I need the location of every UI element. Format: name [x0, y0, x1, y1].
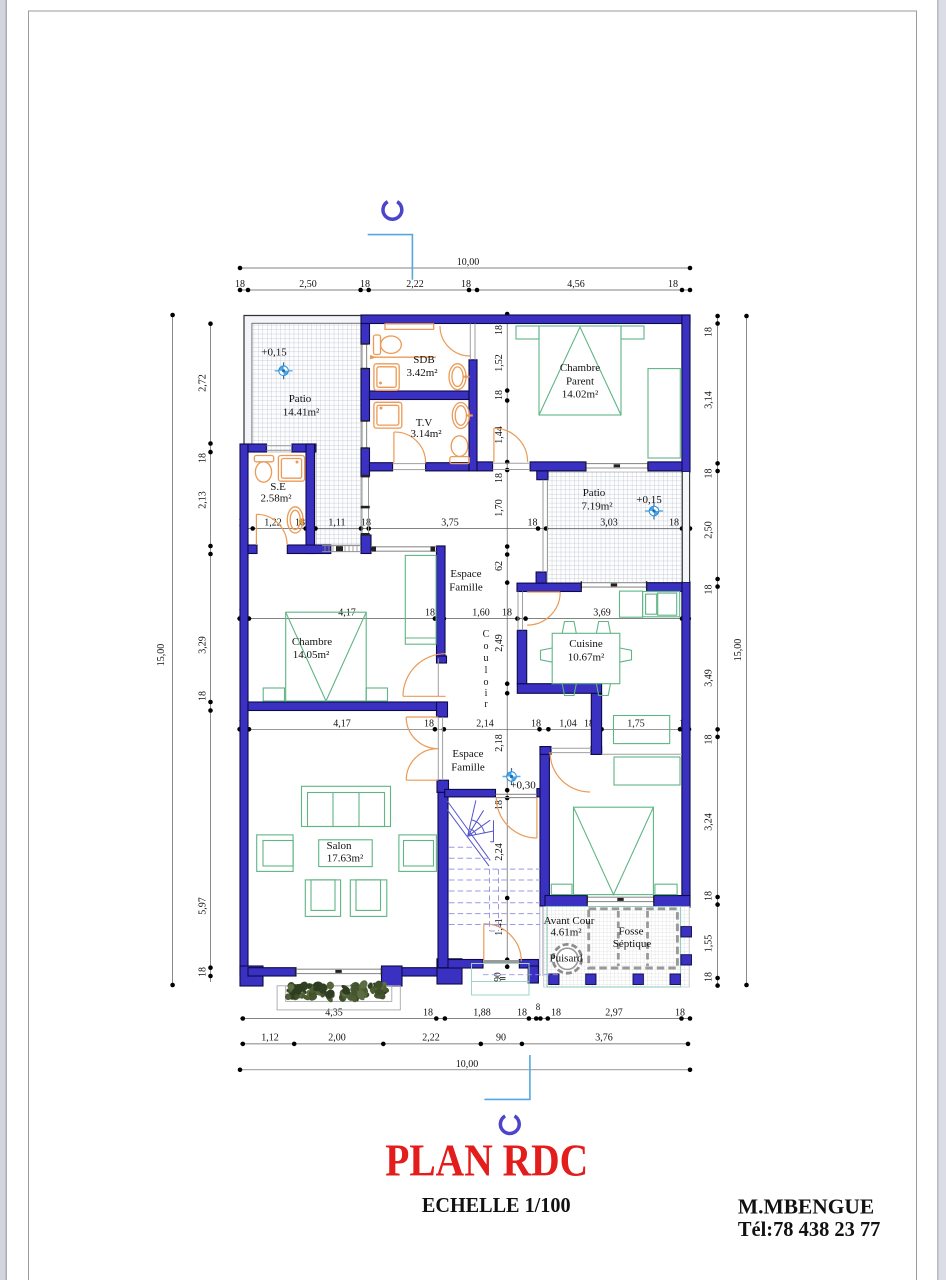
svg-text:2,18: 2,18: [494, 734, 505, 752]
svg-text:i: i: [485, 688, 488, 699]
svg-text:18: 18: [551, 1008, 561, 1019]
svg-text:4,35: 4,35: [325, 1008, 343, 1019]
svg-text:o: o: [484, 641, 489, 652]
svg-text:+0,30: +0,30: [510, 780, 536, 792]
svg-text:Tél:78 438 23 77: Tél:78 438 23 77: [738, 1217, 881, 1241]
svg-text:Salon: Salon: [326, 840, 352, 852]
svg-text:18: 18: [704, 469, 715, 479]
svg-text:18: 18: [461, 279, 471, 290]
svg-text:1,12: 1,12: [261, 1033, 279, 1044]
svg-text:18: 18: [668, 279, 678, 290]
svg-text:3,24: 3,24: [704, 813, 715, 831]
svg-text:Patio: Patio: [583, 487, 606, 499]
svg-text:+0,15: +0,15: [261, 347, 287, 359]
svg-text:18: 18: [704, 972, 715, 982]
svg-text:18: 18: [198, 967, 209, 977]
svg-text:18: 18: [502, 608, 512, 619]
svg-text:7.19m²: 7.19m²: [581, 501, 613, 513]
svg-text:17.63m²: 17.63m²: [327, 853, 364, 865]
svg-text:1,11: 1,11: [328, 518, 345, 529]
svg-text:Séptique: Séptique: [613, 938, 652, 950]
svg-text:Patio: Patio: [289, 393, 312, 405]
svg-text:2,00: 2,00: [328, 1033, 346, 1044]
svg-text:1,75: 1,75: [627, 718, 645, 729]
svg-text:10,00: 10,00: [456, 1059, 479, 1070]
svg-text:ECHELLE 1/100: ECHELLE 1/100: [422, 1193, 571, 1217]
svg-text:18: 18: [669, 518, 679, 529]
svg-text:3,69: 3,69: [593, 608, 611, 619]
svg-text:14.02m²: 14.02m²: [562, 389, 599, 401]
svg-text:18: 18: [198, 453, 209, 463]
svg-text:SDB: SDB: [413, 354, 434, 366]
svg-text:1,55: 1,55: [704, 935, 715, 953]
svg-text:2,97: 2,97: [605, 1008, 623, 1019]
svg-text:PLAN RDC: PLAN RDC: [385, 1135, 588, 1186]
svg-text:2.58m²: 2.58m²: [260, 493, 292, 505]
svg-text:18: 18: [494, 800, 505, 810]
svg-text:4.61m²: 4.61m²: [550, 927, 582, 939]
svg-text:4,17: 4,17: [338, 608, 356, 619]
svg-text:Espace: Espace: [450, 568, 481, 580]
svg-text:18: 18: [235, 279, 245, 290]
svg-text:1,70: 1,70: [494, 499, 505, 517]
svg-text:3,14: 3,14: [704, 391, 715, 409]
svg-text:1,60: 1,60: [472, 608, 490, 619]
svg-text:3.42m²: 3.42m²: [406, 367, 438, 379]
svg-text:18: 18: [517, 1008, 527, 1019]
svg-text:2,24: 2,24: [494, 843, 505, 861]
svg-text:S.E: S.E: [270, 481, 286, 493]
svg-text:18: 18: [360, 279, 370, 290]
svg-text:1,88: 1,88: [473, 1008, 491, 1019]
svg-text:18: 18: [494, 390, 505, 400]
svg-text:Chambre: Chambre: [560, 362, 600, 374]
svg-text:2,72: 2,72: [198, 374, 209, 392]
svg-text:18: 18: [528, 518, 538, 529]
svg-text:1,04: 1,04: [559, 718, 577, 729]
svg-text:2,49: 2,49: [494, 634, 505, 652]
svg-text:18: 18: [424, 718, 434, 729]
svg-text:3,03: 3,03: [600, 518, 618, 529]
svg-text:+0,15: +0,15: [636, 494, 662, 506]
svg-text:2,50: 2,50: [704, 521, 715, 539]
svg-text:Famille: Famille: [451, 762, 485, 774]
svg-text:2,14: 2,14: [476, 718, 494, 729]
svg-text:8: 8: [536, 1002, 541, 1012]
svg-text:3,29: 3,29: [198, 636, 209, 654]
svg-text:o: o: [484, 677, 489, 688]
svg-text:90: 90: [494, 972, 504, 982]
svg-text:3.14m²: 3.14m²: [410, 428, 442, 440]
svg-text:18: 18: [704, 891, 715, 901]
svg-text:18: 18: [704, 735, 715, 745]
svg-text:3,75: 3,75: [441, 518, 459, 529]
svg-text:2,13: 2,13: [198, 491, 209, 509]
svg-text:5,97: 5,97: [198, 897, 209, 915]
svg-text:14.41m²: 14.41m²: [283, 407, 320, 419]
svg-text:10.67m²: 10.67m²: [568, 652, 605, 664]
svg-text:15,00: 15,00: [156, 644, 167, 667]
svg-text:C: C: [483, 629, 490, 640]
svg-text:18: 18: [423, 1008, 433, 1019]
svg-text:90: 90: [496, 1033, 506, 1044]
svg-text:4,56: 4,56: [567, 279, 585, 290]
svg-text:Cuisine: Cuisine: [569, 638, 603, 650]
svg-text:18: 18: [494, 325, 505, 335]
svg-text:3,49: 3,49: [704, 669, 715, 687]
svg-text:10,00: 10,00: [457, 257, 480, 268]
svg-text:3,76: 3,76: [595, 1033, 613, 1044]
svg-text:Fosse: Fosse: [618, 926, 643, 938]
svg-text:18: 18: [675, 1008, 685, 1019]
svg-text:18: 18: [425, 608, 435, 619]
svg-text:Parent: Parent: [566, 376, 594, 388]
svg-text:Puisard: Puisard: [550, 953, 584, 965]
svg-text:14.05m²: 14.05m²: [293, 649, 330, 661]
svg-text:Espace: Espace: [452, 748, 483, 760]
svg-text:2,50: 2,50: [299, 279, 317, 290]
svg-text:18: 18: [704, 327, 715, 337]
svg-text:M.MBENGUE: M.MBENGUE: [738, 1195, 874, 1219]
svg-text:18: 18: [531, 718, 541, 729]
svg-text:2,22: 2,22: [406, 279, 424, 290]
svg-text:2,22: 2,22: [422, 1033, 440, 1044]
svg-text:15,00: 15,00: [733, 639, 744, 662]
svg-text:Avant Cour: Avant Cour: [544, 915, 595, 927]
svg-text:18: 18: [198, 691, 209, 701]
svg-text:4,17: 4,17: [333, 718, 351, 729]
svg-text:62: 62: [494, 561, 505, 571]
svg-text:18: 18: [704, 585, 715, 595]
svg-text:u: u: [484, 653, 489, 664]
svg-text:1,52: 1,52: [494, 354, 505, 372]
svg-text:18: 18: [494, 473, 505, 483]
svg-text:l: l: [485, 665, 488, 676]
svg-text:Chambre: Chambre: [292, 636, 332, 648]
svg-text:Famille: Famille: [449, 582, 483, 594]
